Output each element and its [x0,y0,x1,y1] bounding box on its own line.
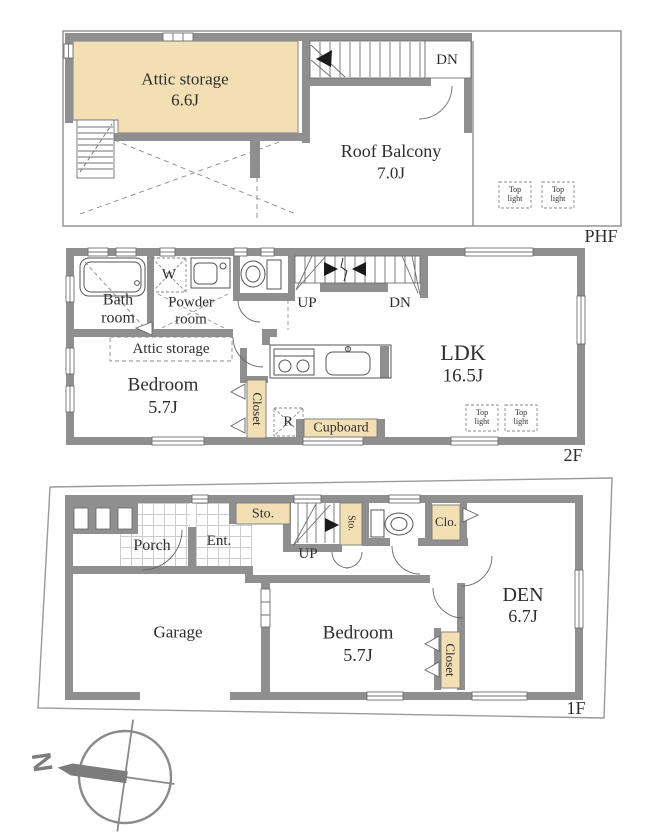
entrance-label: Ent. [207,533,232,550]
stove-burner [297,360,309,372]
f1-up-label: UP [298,546,317,563]
bath-room-label: Bath room [95,291,141,326]
powder-sink-icon [191,258,230,288]
f1-storage1-label: Sto. [252,506,274,521]
f1-floor-label: 1F [566,699,585,719]
phf-toplight-label-2: Top light [545,186,571,204]
roof-balcony-label: Roof Balcony [341,142,442,162]
phf-attic-storage-size: 6.6J [171,92,199,111]
f2-closet-label: Closet [250,392,264,425]
f1-storage2-label: Sto. [346,515,357,531]
sink-icon [326,352,370,375]
f2-toplight-label-1: Top light [469,409,495,427]
f1-bedroom-size: 5.7J [343,646,373,666]
f1-closet-label: Closet [443,643,457,676]
f2-up-label: UP [297,295,316,312]
roof-balcony-size: 7.0J [377,165,405,184]
attic-ladder [77,120,114,178]
phf-dn-label: DN [436,52,458,69]
north-arrow [57,762,128,784]
f2-bedroom-label: Bedroom [128,376,199,397]
f2-floor-label: 2F [563,446,582,466]
stove-burner [279,360,291,372]
bathtub-icon [80,258,145,296]
phf-attic-storage-label: Attic storage [141,71,228,90]
powder-room-label: Powder room [160,295,222,328]
garage-label: Garage [153,624,202,643]
phf-floor-label: PHF [584,227,617,247]
floorplan-drawing [0,0,654,835]
ldk-size: 16.5J [443,367,484,388]
f2-toplight-label-2: Top light [508,409,534,427]
phf-floor [63,31,621,226]
wall-openings [74,508,132,529]
door-arc [419,86,452,119]
f2-dn-label: DN [389,295,411,312]
f1-stairs [293,503,339,546]
f2-attic-storage-label: Attic storage [132,341,209,358]
stair-up-arrow [325,518,339,532]
refrigerator-label: R [283,414,292,429]
compass [50,710,183,835]
f1-toilet-icon [371,510,413,537]
cupboard-label: Cupboard [313,420,368,435]
f2-bedroom-size: 5.7J [148,398,178,418]
floor-plan: Attic storage 6.6J DN Roof Balcony 7.0J … [0,0,654,835]
f1-bedroom-label: Bedroom [323,624,394,645]
washer-label: W [162,267,176,284]
phf-toplight-label-1: Top light [502,186,528,204]
den-label: DEN [502,584,543,606]
porch-label: Porch [133,537,170,555]
ldk-label: LDK [440,341,485,365]
kitchen-icons [270,345,391,378]
f2-toilet-icon [241,260,281,289]
closet-small-label: Clo. [435,515,457,529]
den-size: 6.7J [508,607,538,627]
